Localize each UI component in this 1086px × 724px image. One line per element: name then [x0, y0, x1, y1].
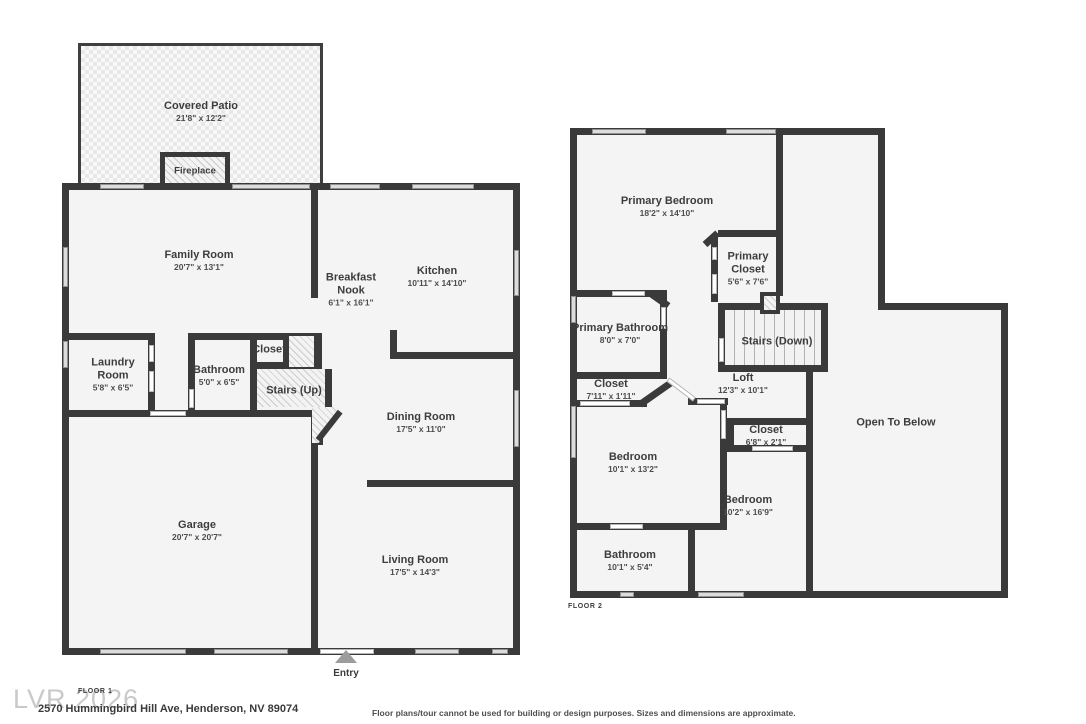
- room-label-family-room: Family Room 20'7" x 13'1": [164, 249, 233, 273]
- room-dims: 5'8" x 6'5": [81, 382, 145, 393]
- chase: [289, 336, 314, 367]
- room-label-primary-bedroom: Primary Bedroom 18'2" x 14'10": [621, 195, 713, 219]
- window: [330, 184, 380, 189]
- room-label-living-room: Living Room 17'5" x 14'3": [382, 554, 449, 578]
- room-dims: 10'11" x 14'10": [408, 278, 467, 289]
- room-name: Bathroom: [193, 364, 245, 377]
- room-name: Primary Bedroom: [621, 195, 713, 208]
- room-label-hall-closet: Closet 7'11" x 1'11": [587, 378, 636, 402]
- room-label-bathroom2: Bathroom 10'1" x 5'4": [604, 549, 656, 573]
- room-dims: 6'1" x 16'1": [314, 297, 388, 308]
- wall: [878, 303, 1008, 310]
- window: [592, 129, 646, 134]
- room-name: Closet: [746, 424, 786, 437]
- room-label-bathroom: Bathroom 5'0" x 6'5": [193, 364, 245, 388]
- door-opening: [189, 389, 194, 408]
- window: [726, 129, 776, 134]
- room-label-dining-room: Dining Room 17'5" x 11'0": [387, 411, 455, 435]
- room-name: Family Room: [164, 249, 233, 262]
- room-dims: 20'7" x 13'1": [164, 262, 233, 273]
- door-opening: [612, 291, 645, 296]
- room-label-garage: Garage 20'7" x 20'7": [172, 519, 222, 543]
- door-opening: [610, 524, 643, 529]
- room-label-kitchen: Kitchen 10'11" x 14'10": [408, 265, 467, 289]
- room-dims: 8'0" x 7'0": [572, 335, 668, 346]
- disclaimer-text: Floor plans/tour cannot be used for buil…: [372, 708, 796, 718]
- room-label-open-to-below: Open To Below: [856, 417, 935, 430]
- room-dims: 10'1" x 5'4": [604, 562, 656, 573]
- door-opening: [149, 371, 154, 392]
- room-label-breakfast-nook: Breakfast Nook 6'1" x 16'1": [314, 272, 388, 309]
- room-dims: 10'1" x 13'2": [608, 464, 658, 475]
- room-name: Bathroom: [604, 549, 656, 562]
- sliding-door: [232, 184, 310, 189]
- wall: [325, 369, 332, 409]
- room-dims: 5'0" x 6'5": [193, 377, 245, 388]
- room-dims: 17'5" x 11'0": [387, 424, 455, 435]
- room-label-stairs-up: Stairs (Up): [266, 385, 322, 398]
- room-name: Breakfast Nook: [314, 272, 388, 298]
- room-name: Dining Room: [387, 411, 455, 424]
- room-name: Loft: [718, 372, 768, 385]
- floor-plan-canvas: Covered Patio 21'8" x 12'2" Fireplace Fa…: [0, 0, 1086, 724]
- window: [571, 296, 576, 323]
- room-dims: 5'6" x 7'6": [713, 276, 783, 287]
- room-dims: 17'5" x 14'3": [382, 567, 449, 578]
- wall: [367, 480, 520, 487]
- floor2-caption: FLOOR 2: [568, 603, 603, 610]
- room-label-loft: Loft 12'3" x 10'1": [718, 372, 768, 396]
- window: [63, 341, 68, 368]
- room-name: Garage: [172, 519, 222, 532]
- garage-door: [214, 649, 288, 654]
- door-opening: [721, 410, 726, 439]
- room-name: Closet: [587, 378, 636, 391]
- room-label-covered-patio: Covered Patio 21'8" x 12'2": [164, 100, 238, 124]
- wall: [570, 523, 727, 530]
- wall: [688, 523, 695, 598]
- window: [514, 250, 519, 296]
- room-name: Bedroom: [608, 451, 658, 464]
- room-dims: 21'8" x 12'2": [164, 113, 238, 124]
- address-text: 2570 Hummingbird Hill Ave, Henderson, NV…: [38, 703, 298, 715]
- wall: [718, 230, 783, 237]
- room-label-bedroom-left: Bedroom 10'1" x 13'2": [608, 451, 658, 475]
- room-name: Fireplace: [174, 165, 216, 176]
- window: [571, 406, 576, 458]
- room-label-laundry-room: Laundry Room 5'8" x 6'5": [81, 357, 145, 394]
- room-name: Bedroom: [723, 494, 773, 507]
- entry-label: Entry: [333, 668, 359, 679]
- wall: [1001, 303, 1008, 598]
- wall: [314, 340, 322, 370]
- room-label-primary-bathroom: Primary Bathroom 8'0" x 7'0": [572, 322, 668, 346]
- room-name: Primary Bathroom: [572, 322, 668, 335]
- door-opening: [149, 345, 154, 362]
- door-opening: [150, 411, 186, 416]
- room-label-closet: Closet: [252, 344, 286, 357]
- room-label-bedroom-right: Bedroom 10'2" x 16'9": [723, 494, 773, 518]
- wall: [806, 365, 813, 598]
- room-name: Living Room: [382, 554, 449, 567]
- garage-door: [100, 649, 186, 654]
- room-label-bedroom-closet: Closet 6'8" x 2'1": [746, 424, 786, 448]
- room-name: Stairs (Up): [266, 385, 322, 398]
- room-dims: 20'7" x 20'7": [172, 532, 222, 543]
- floor2-area: [878, 303, 1008, 598]
- wall: [188, 333, 257, 340]
- wall: [390, 352, 520, 359]
- window: [492, 649, 508, 654]
- room-dims: 18'2" x 14'10": [621, 208, 713, 219]
- room-label-stairs-down: Stairs (Down): [742, 336, 813, 349]
- window: [415, 649, 459, 654]
- window: [514, 390, 519, 447]
- room-dims: 6'8" x 2'1": [746, 437, 786, 448]
- floor1-caption: FLOOR 1: [78, 688, 113, 695]
- room-name: Covered Patio: [164, 100, 238, 113]
- room-name: Kitchen: [408, 265, 467, 278]
- room-name: Closet: [252, 344, 286, 357]
- chase: [760, 292, 780, 314]
- wall: [62, 410, 318, 417]
- wall: [62, 333, 152, 340]
- room-name: Open To Below: [856, 417, 935, 430]
- window: [698, 592, 744, 597]
- wall: [821, 303, 828, 372]
- room-dims: 7'11" x 1'11": [587, 391, 636, 402]
- wall: [311, 410, 318, 655]
- window: [620, 592, 634, 597]
- room-dims: 12'3" x 10'1": [718, 385, 768, 396]
- room-label-fireplace: Fireplace: [174, 165, 216, 176]
- room-label-primary-closet: Primary Closet 5'6" x 7'6": [713, 251, 783, 288]
- window: [100, 184, 144, 189]
- entry-arrow-icon: [335, 650, 357, 663]
- wall: [570, 591, 1008, 598]
- window: [412, 184, 474, 189]
- window: [63, 247, 68, 287]
- room-name: Laundry Room: [81, 357, 145, 383]
- room-name: Stairs (Down): [742, 336, 813, 349]
- room-name: Primary Closet: [713, 251, 783, 277]
- wall: [878, 128, 885, 310]
- door-opening: [719, 338, 724, 362]
- room-dims: 10'2" x 16'9": [723, 507, 773, 518]
- door-opening: [697, 399, 725, 404]
